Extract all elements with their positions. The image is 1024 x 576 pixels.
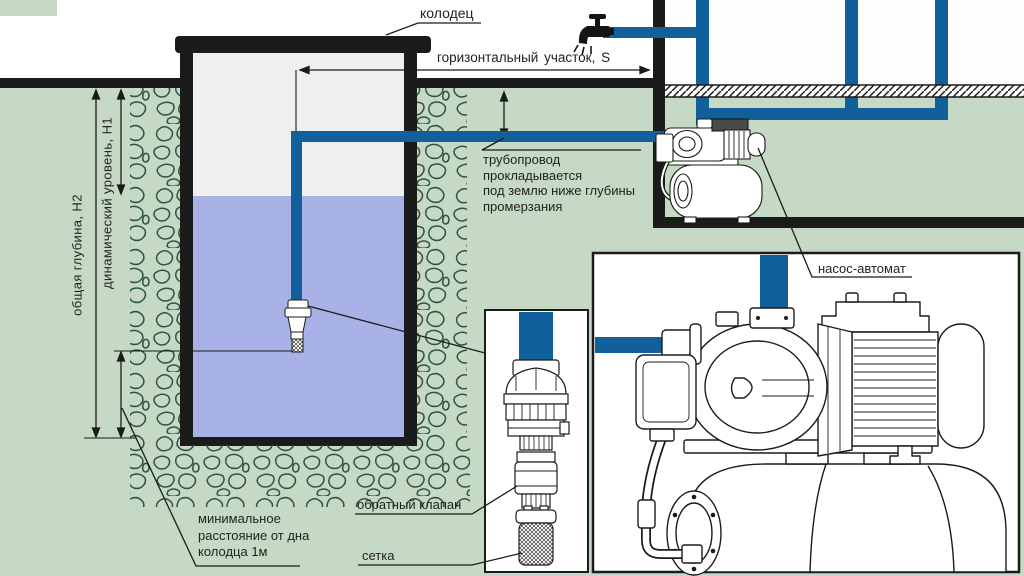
riser-pipe-1 bbox=[696, 0, 709, 125]
label-freeze-note: трубопровод прокладывается под землю ниж… bbox=[483, 152, 635, 214]
foot-valve-in-well bbox=[285, 300, 311, 352]
riser-pipe-2 bbox=[845, 0, 858, 120]
label-dynamic-level: динамический уровень, Н1 bbox=[100, 117, 115, 289]
label-total-depth: общая глубина, Н2 bbox=[70, 194, 85, 316]
label-well: колодец bbox=[420, 6, 474, 21]
label-pump-station: насос-автомат bbox=[818, 261, 906, 276]
well-water-supply-diagram: колодец горизонтальный участок, S трубоп… bbox=[0, 0, 1024, 576]
label-horizontal-section: горизонтальный участок, S bbox=[437, 50, 610, 65]
riser-pipe-3 bbox=[935, 0, 948, 120]
label-check-valve: обратный клапан bbox=[357, 497, 461, 512]
distribution-pipe bbox=[696, 108, 948, 120]
basement-pump-station bbox=[656, 119, 765, 223]
suction-pipe bbox=[291, 131, 668, 142]
well-drop-pipe bbox=[291, 131, 302, 301]
tap-branch-pipe bbox=[603, 27, 709, 38]
label-min-distance: минимальное расстояние от дна колодца 1м bbox=[198, 511, 309, 561]
leader-well bbox=[386, 23, 481, 35]
outdoor-tap-icon bbox=[574, 14, 614, 55]
diagram-linework bbox=[0, 0, 1024, 576]
label-strainer: сетка bbox=[362, 548, 394, 563]
floor-slab bbox=[665, 85, 1024, 97]
